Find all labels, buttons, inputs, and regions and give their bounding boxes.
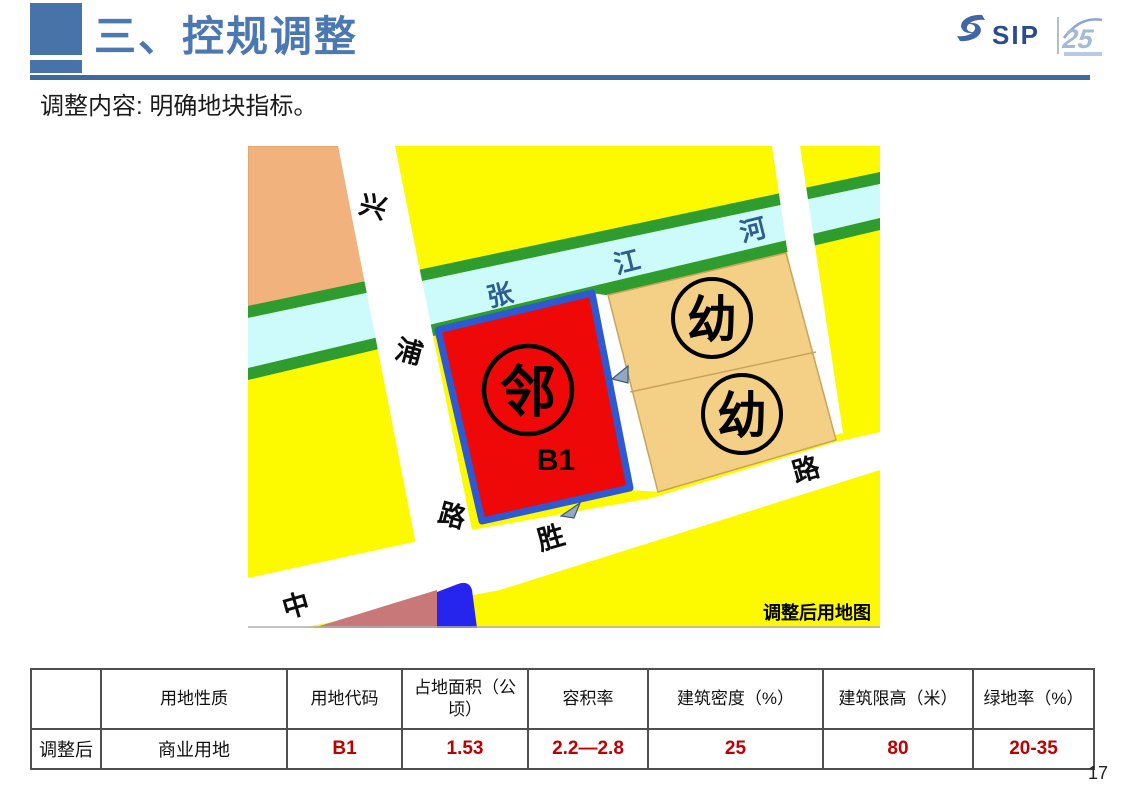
cell-land-use: 商业用地	[101, 729, 287, 769]
page-title: 三、控规调整	[94, 4, 358, 70]
indicator-table: 用地性质 用地代码 占地面积（公顷） 容积率 建筑密度（%） 建筑限高（米） 绿…	[30, 668, 1095, 770]
header-cell-empty	[31, 669, 101, 729]
cell-density: 25	[648, 729, 823, 769]
header-cell-area: 占地面积（公顷）	[402, 669, 528, 729]
slide-page: 三、控规调整 SIP 25 调整内容: 明确地块指标。	[0, 0, 1123, 794]
cell-green-rate: 20-35	[973, 729, 1094, 769]
header-cell-land-code: 用地代码	[287, 669, 402, 729]
table-data-row: 调整后 商业用地 B1 1.53 2.2—2.8 25 80 20-35	[31, 729, 1094, 769]
zoning-map: 邻 B1 幼 幼 兴 浦 路 中 胜 路 张 江 河 调整后用地图	[248, 146, 880, 628]
header-square-decoration	[30, 3, 82, 55]
header-rule	[30, 75, 1090, 80]
kindergarten-char-upper: 幼	[687, 292, 737, 348]
header-cell-height-limit: 建筑限高（米）	[823, 669, 973, 729]
cell-height-limit: 80	[823, 729, 973, 769]
adjustment-content-text: 调整内容: 明确地块指标。	[40, 86, 317, 121]
cell-land-code: B1	[287, 729, 402, 769]
cell-row-label: 调整后	[31, 729, 101, 769]
block-code-label: B1	[537, 444, 575, 477]
page-number: 17	[1088, 763, 1108, 784]
table-header-row: 用地性质 用地代码 占地面积（公顷） 容积率 建筑密度（%） 建筑限高（米） 绿…	[31, 669, 1094, 729]
header-cell-green-rate: 绿地率（%）	[973, 669, 1094, 729]
header-cell-land-use: 用地性质	[101, 669, 287, 729]
header-bar-decoration	[30, 60, 82, 73]
sip-swoosh-icon	[957, 15, 985, 41]
cell-far: 2.2—2.8	[528, 729, 648, 769]
sip-logo-text: SIP	[992, 20, 1040, 50]
cell-area: 1.53	[402, 729, 528, 769]
header-cell-far: 容积率	[528, 669, 648, 729]
logo-caption-bar	[1064, 52, 1102, 56]
header-cell-density: 建筑密度（%）	[648, 669, 823, 729]
anniversary-number: 25	[1060, 23, 1095, 54]
kindergarten-char-lower: 幼	[717, 388, 767, 444]
sip-logo: SIP 25	[952, 10, 1110, 62]
map-caption: 调整后用地图	[763, 602, 871, 623]
neighborhood-char: 邻	[500, 361, 556, 424]
